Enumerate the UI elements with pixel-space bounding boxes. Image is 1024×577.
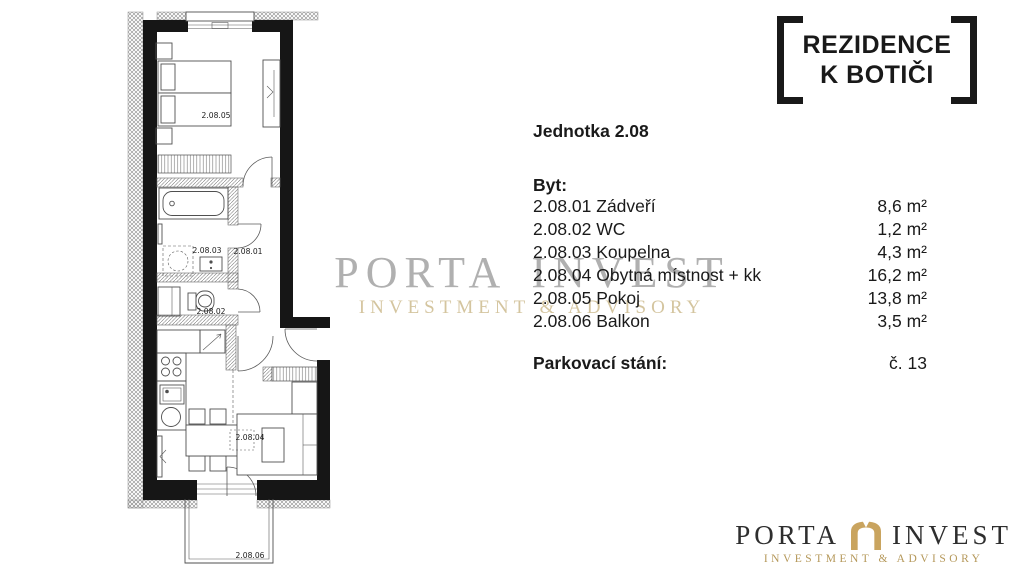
interior-walls (157, 178, 280, 370)
room-name: 2.08.01 Zádveří (533, 195, 656, 218)
bathtub (159, 188, 228, 219)
living-room-door (238, 336, 273, 371)
room-label-hall: 2.08.01 (234, 247, 263, 256)
sofa (237, 382, 317, 475)
company-word2: INVEST (892, 520, 1012, 550)
room-row: 2.08.06 Balkon 3,5 m² (533, 310, 927, 333)
company-word1: PORTA (735, 520, 840, 550)
room-name: 2.08.05 Pokoj (533, 287, 640, 310)
unit-title: Jednotka 2.08 (533, 121, 927, 141)
tall-cabinet (200, 330, 225, 353)
bathroom-door (238, 224, 261, 248)
kitchen-cabinet (157, 330, 200, 353)
bed (158, 93, 231, 126)
bedroom-door (243, 157, 272, 186)
parking-row: Parkovací stání: č. 13 (533, 352, 927, 375)
room-row: 2.08.02 WC 1,2 m² (533, 218, 927, 241)
room-label-balcony: 2.08.06 (236, 551, 265, 560)
room-name: 2.08.06 Balkon (533, 310, 650, 333)
section-label: Byt: (533, 175, 927, 195)
towel-radiator (158, 224, 162, 244)
room-row: 2.08.04 Obytná místnost + kk 16,2 m² (533, 264, 927, 287)
bathroom-furniture (158, 188, 228, 276)
room-name: 2.08.02 WC (533, 218, 625, 241)
room-label-wc: 2.08.02 (197, 307, 226, 316)
bathroom-sink (200, 257, 222, 271)
unit-info: Jednotka 2.08 Byt: 2.08.01 Zádveří 8,6 m… (533, 121, 927, 375)
kitchen-sink (160, 385, 184, 404)
bedroom-furniture (156, 43, 280, 173)
room-area: 13,8 m² (868, 287, 927, 310)
room-area: 16,2 m² (868, 264, 927, 287)
round-basin (162, 408, 181, 427)
room-table: 2.08.01 Zádveří 8,6 m² 2.08.02 WC 1,2 m²… (533, 195, 927, 333)
nightstand (156, 128, 172, 144)
project-name: REZIDENCE K BOTIČI (803, 30, 952, 90)
washing-machine (163, 246, 193, 276)
room-area: 8,6 m² (877, 195, 927, 218)
nightstand (156, 43, 172, 59)
bedroom-window (186, 12, 254, 29)
project-logo: REZIDENCE K BOTIČI (777, 15, 977, 105)
room-area: 1,2 m² (877, 218, 927, 241)
radiator (158, 155, 231, 173)
stove (157, 353, 186, 381)
installation-shaft (158, 287, 180, 316)
floor-plan: 2.08.05 2.08.03 2.08.01 2.08.02 2.08.04 … (0, 0, 350, 577)
wardrobe (263, 60, 280, 127)
room-label-bedroom: 2.08.05 (202, 111, 231, 120)
room-label-living-room: 2.08.04 (236, 433, 265, 442)
room-area: 4,3 m² (877, 241, 927, 264)
room-label-bathroom: 2.08.03 (193, 246, 222, 255)
entry-radiator (263, 367, 317, 381)
wall-radiator (157, 436, 166, 477)
company-logo: PORTA INVEST INVESTMENT & ADVISORY (735, 520, 1012, 565)
room-name: 2.08.04 Obytná místnost + kk (533, 264, 761, 287)
chair (189, 409, 205, 424)
room-name: 2.08.03 Koupelna (533, 241, 670, 264)
bed (158, 61, 231, 93)
kitchen-counter (157, 381, 186, 430)
chair (210, 456, 226, 471)
chair (210, 409, 226, 424)
entrance-door (285, 329, 317, 361)
bracket-left-icon (777, 16, 803, 104)
room-row: 2.08.01 Zádveří 8,6 m² (533, 195, 927, 218)
company-subtitle: INVESTMENT & ADVISORY (735, 553, 1012, 565)
chair (189, 456, 205, 471)
room-area: 3,5 m² (877, 310, 927, 333)
room-row: 2.08.05 Pokoj 13,8 m² (533, 287, 927, 310)
watermark-word1: PORTA (334, 249, 507, 297)
project-name-line1: REZIDENCE (803, 30, 952, 60)
project-name-line2: K BOTIČI (803, 60, 952, 90)
page: 2.08.05 2.08.03 2.08.01 2.08.02 2.08.04 … (0, 0, 1024, 577)
parking-label: Parkovací stání: (533, 352, 667, 375)
room-row: 2.08.03 Koupelna 4,3 m² (533, 241, 927, 264)
arch-icon (849, 520, 883, 550)
wc-door (238, 289, 260, 312)
bracket-right-icon (951, 16, 977, 104)
parking-value: č. 13 (889, 352, 927, 375)
